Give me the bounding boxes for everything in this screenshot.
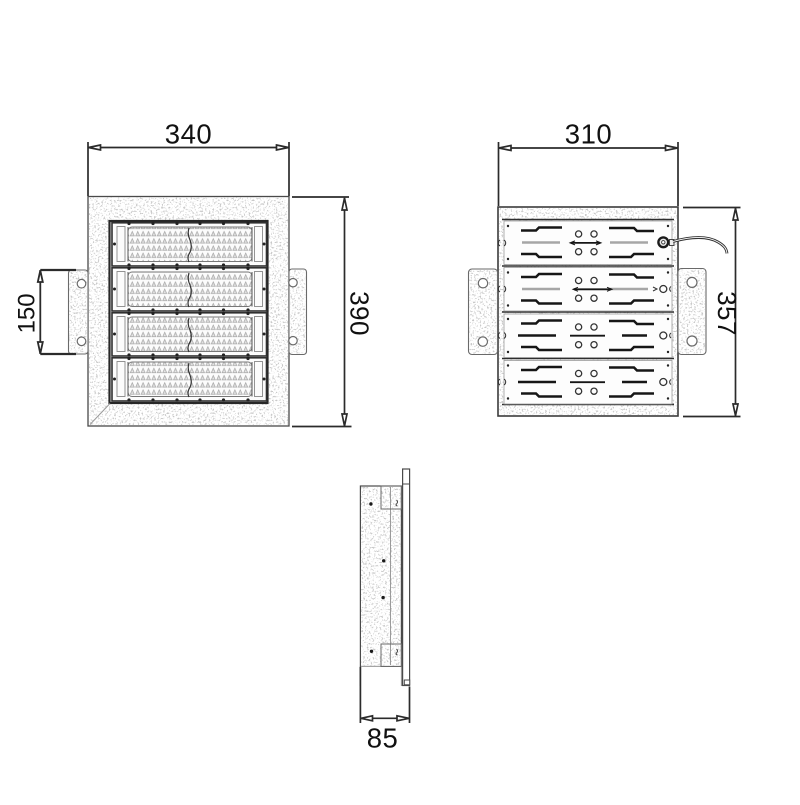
svg-text:340: 340 [165,119,212,150]
svg-text:310: 310 [565,119,612,150]
svg-text:357: 357 [712,291,742,336]
svg-text:85: 85 [367,723,399,754]
svg-text:390: 390 [345,291,375,336]
svg-text:150: 150 [14,293,41,333]
